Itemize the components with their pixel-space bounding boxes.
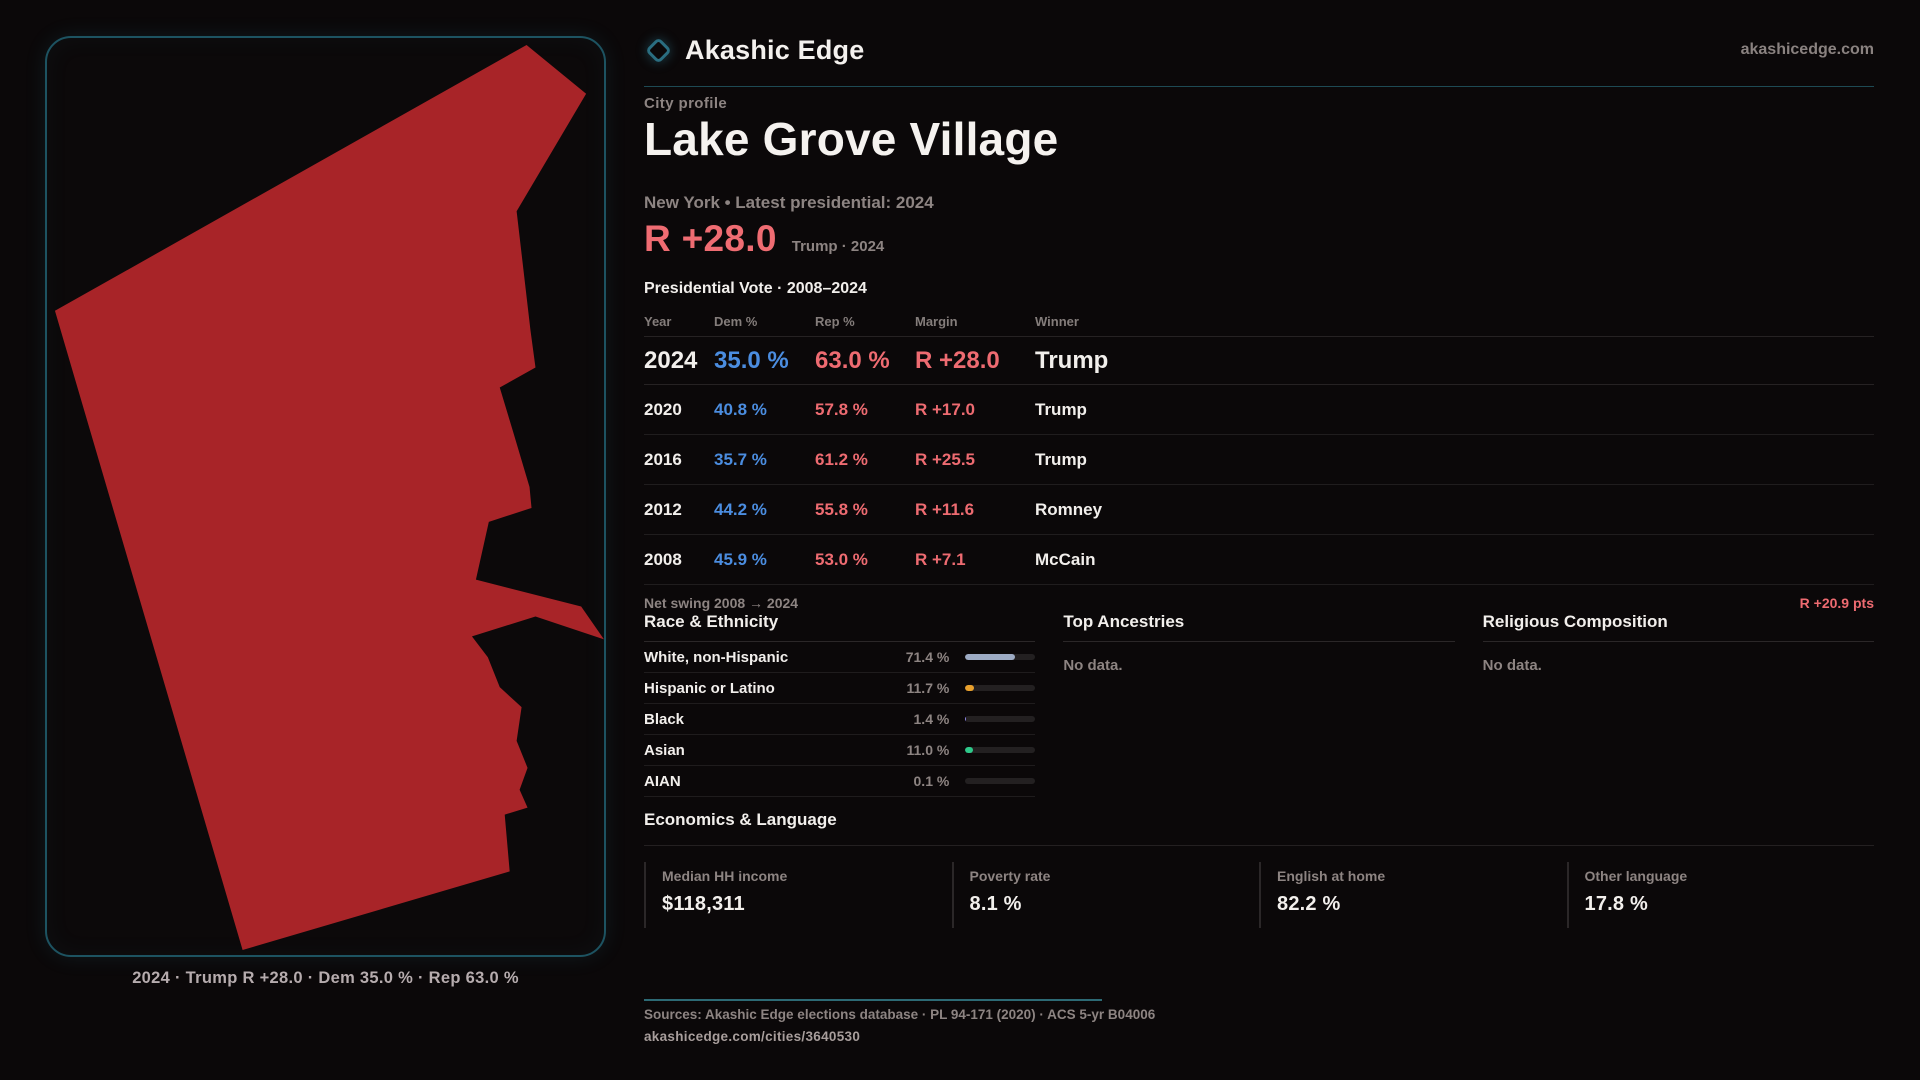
net-swing-label: Net swing 2008 → 2024 bbox=[644, 595, 798, 611]
race-bar-fill bbox=[965, 654, 1015, 660]
table-row: 2012 44.2 % 55.8 % R +11.6 Romney bbox=[644, 485, 1874, 535]
cell-year: 2016 bbox=[644, 450, 714, 470]
cell-rep: 63.0 % bbox=[815, 347, 915, 375]
eyebrow-label: City profile bbox=[644, 95, 727, 112]
race-bar-fill bbox=[965, 747, 973, 753]
cell-winner: McCain bbox=[1035, 550, 1874, 570]
cell-year: 2012 bbox=[644, 500, 714, 520]
col-header-year: Year bbox=[644, 314, 714, 329]
cell-dem: 35.0 % bbox=[714, 347, 815, 375]
religion-empty-state: No data. bbox=[1483, 657, 1874, 674]
race-bar bbox=[965, 778, 1035, 784]
col-header-margin: Margin bbox=[915, 314, 1035, 329]
col-header-rep: Rep % bbox=[815, 314, 915, 329]
race-bar bbox=[965, 716, 1035, 722]
header: Akashic Edge akashicedge.com bbox=[644, 30, 1874, 70]
economics-divider bbox=[644, 845, 1874, 846]
header-divider bbox=[644, 86, 1874, 87]
race-ethnicity-column: Race & Ethnicity White, non-Hispanic 71.… bbox=[644, 612, 1035, 797]
list-item: Black 1.4 % bbox=[644, 704, 1035, 735]
cell-rep: 57.8 % bbox=[815, 400, 915, 420]
headline-margin-row: R +28.0 Trump · 2024 bbox=[644, 218, 884, 260]
cell-rep: 61.2 % bbox=[815, 450, 915, 470]
stat-label: English at home bbox=[1277, 868, 1567, 884]
race-label: AIAN bbox=[644, 773, 869, 790]
stat-label: Other language bbox=[1585, 868, 1875, 884]
race-bar bbox=[965, 747, 1035, 753]
col-header-dem: Dem % bbox=[714, 314, 815, 329]
cell-winner: Trump bbox=[1035, 347, 1874, 375]
race-value: 11.0 % bbox=[885, 742, 949, 758]
brand-domain-link[interactable]: akashicedge.com bbox=[1741, 41, 1874, 59]
ancestries-empty-state: No data. bbox=[1063, 657, 1454, 674]
race-bar bbox=[965, 685, 1035, 691]
footer-divider bbox=[644, 999, 1102, 1001]
headline-margin-value: R +28.0 bbox=[644, 218, 777, 260]
stat-card: Poverty rate 8.1 % bbox=[952, 862, 1260, 928]
diamond-logo-icon bbox=[645, 37, 672, 64]
cell-dem: 40.8 % bbox=[714, 400, 815, 420]
cell-dem: 35.7 % bbox=[714, 450, 815, 470]
footer-sources: Sources: Akashic Edge elections database… bbox=[644, 1007, 1155, 1022]
vote-table-title: Presidential Vote · 2008–2024 bbox=[644, 280, 867, 298]
stat-value: 82.2 % bbox=[1277, 893, 1567, 916]
cell-margin: R +7.1 bbox=[915, 550, 1035, 570]
stat-label: Poverty rate bbox=[970, 868, 1260, 884]
cell-winner: Trump bbox=[1035, 400, 1874, 420]
cell-dem: 45.9 % bbox=[714, 550, 815, 570]
footer-permalink[interactable]: akashicedge.com/cities/3640530 bbox=[644, 1029, 860, 1044]
stat-card: Other language 17.8 % bbox=[1567, 862, 1875, 928]
city-boundary-map bbox=[47, 38, 604, 955]
stat-label: Median HH income bbox=[662, 868, 952, 884]
table-row: 2024 35.0 % 63.0 % R +28.0 Trump bbox=[644, 337, 1874, 385]
cell-winner: Romney bbox=[1035, 500, 1874, 520]
net-swing-value: R +20.9 pts bbox=[1800, 595, 1874, 611]
demographics-section: Race & Ethnicity White, non-Hispanic 71.… bbox=[644, 612, 1874, 797]
economics-stats: Median HH income $118,311 Poverty rate 8… bbox=[644, 862, 1874, 928]
brand-title: Akashic Edge bbox=[685, 35, 864, 66]
race-label: Black bbox=[644, 711, 869, 728]
race-value: 71.4 % bbox=[885, 649, 949, 665]
economics-title: Economics & Language bbox=[644, 810, 837, 830]
race-bar-fill bbox=[965, 716, 966, 722]
race-ethnicity-title: Race & Ethnicity bbox=[644, 612, 1035, 642]
ancestries-column: Top Ancestries No data. bbox=[1063, 612, 1454, 797]
race-bar bbox=[965, 654, 1035, 660]
map-caption: 2024 · Trump R +28.0 · Dem 35.0 % · Rep … bbox=[45, 969, 606, 988]
net-swing-row: Net swing 2008 → 2024 R +20.9 pts bbox=[644, 585, 1874, 611]
race-label: Asian bbox=[644, 742, 869, 759]
page-title: Lake Grove Village bbox=[644, 112, 1058, 166]
vote-table-header: Year Dem % Rep % Margin Winner bbox=[644, 306, 1874, 337]
race-value: 0.1 % bbox=[885, 773, 949, 789]
cell-rep: 53.0 % bbox=[815, 550, 915, 570]
race-bar-fill bbox=[965, 685, 973, 691]
cell-dem: 44.2 % bbox=[714, 500, 815, 520]
page-subtitle: New York • Latest presidential: 2024 bbox=[644, 193, 934, 213]
race-value: 11.7 % bbox=[885, 680, 949, 696]
cell-year: 2008 bbox=[644, 550, 714, 570]
cell-year: 2024 bbox=[644, 347, 714, 375]
religion-title: Religious Composition bbox=[1483, 612, 1874, 642]
city-boundary-polygon bbox=[55, 45, 604, 950]
stat-card: English at home 82.2 % bbox=[1259, 862, 1567, 928]
race-value: 1.4 % bbox=[885, 711, 949, 727]
stat-card: Median HH income $118,311 bbox=[644, 862, 952, 928]
cell-margin: R +17.0 bbox=[915, 400, 1035, 420]
col-header-winner: Winner bbox=[1035, 314, 1874, 329]
cell-margin: R +11.6 bbox=[915, 500, 1035, 520]
list-item: Hispanic or Latino 11.7 % bbox=[644, 673, 1035, 704]
race-label: Hispanic or Latino bbox=[644, 680, 869, 697]
religion-column: Religious Composition No data. bbox=[1483, 612, 1874, 797]
table-row: 2016 35.7 % 61.2 % R +25.5 Trump bbox=[644, 435, 1874, 485]
list-item: Asian 11.0 % bbox=[644, 735, 1035, 766]
cell-margin: R +28.0 bbox=[915, 347, 1035, 375]
city-boundary-map-card bbox=[45, 36, 606, 957]
vote-table: Year Dem % Rep % Margin Winner 2024 35.0… bbox=[644, 306, 1874, 611]
cell-rep: 55.8 % bbox=[815, 500, 915, 520]
profile-content: Akashic Edge akashicedge.com City profil… bbox=[644, 0, 1874, 1080]
cell-winner: Trump bbox=[1035, 450, 1874, 470]
cell-year: 2020 bbox=[644, 400, 714, 420]
list-item: White, non-Hispanic 71.4 % bbox=[644, 642, 1035, 673]
headline-margin-note: Trump · 2024 bbox=[792, 238, 885, 255]
cell-margin: R +25.5 bbox=[915, 450, 1035, 470]
table-row: 2008 45.9 % 53.0 % R +7.1 McCain bbox=[644, 535, 1874, 585]
stat-value: $118,311 bbox=[662, 893, 952, 916]
stat-value: 17.8 % bbox=[1585, 893, 1875, 916]
ancestries-title: Top Ancestries bbox=[1063, 612, 1454, 642]
table-row: 2020 40.8 % 57.8 % R +17.0 Trump bbox=[644, 385, 1874, 435]
race-label: White, non-Hispanic bbox=[644, 649, 869, 666]
stat-value: 8.1 % bbox=[970, 893, 1260, 916]
list-item: AIAN 0.1 % bbox=[644, 766, 1035, 797]
